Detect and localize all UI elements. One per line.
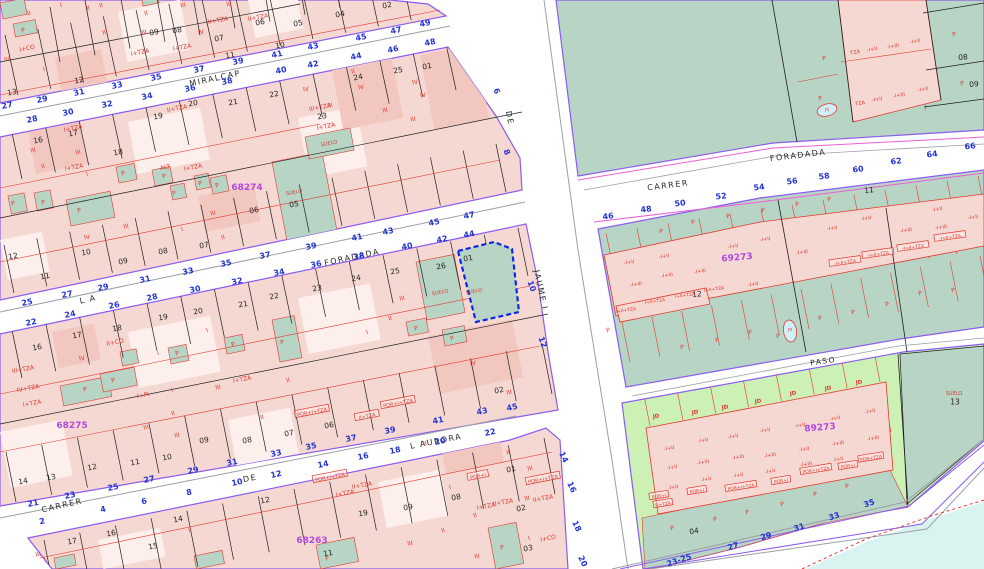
parcel-number: 25 (393, 65, 404, 76)
parcel-annotation: SUELO (946, 391, 963, 397)
parcel-number: 03 (523, 543, 534, 554)
parcel-number: 08 (158, 246, 169, 257)
parcel-number: 21 (228, 97, 239, 108)
street-number: 33 (111, 80, 124, 91)
street-number: 8 (185, 487, 193, 497)
street-name: CARRER (647, 178, 690, 192)
parcel-number: 08 (172, 25, 183, 36)
pink-strip-bundle (838, 0, 941, 122)
parcel-number: 17 (72, 330, 83, 341)
parcel-number: 02 (494, 385, 505, 396)
parcel-annotation: JD (854, 379, 863, 386)
parcel-number: 16 (33, 135, 44, 146)
parcel-number: 09 (403, 502, 414, 513)
street-number: 52 (715, 191, 727, 201)
street-number: 47 (463, 210, 476, 221)
parcel-number: 26 (436, 261, 447, 272)
street-number: 48 (640, 204, 653, 214)
parcel-number: 20 (188, 98, 199, 109)
street-number: 56 (786, 176, 799, 186)
street-number: 31 (139, 274, 152, 285)
suelo-13-parcel (900, 346, 984, 504)
parcel-number: 05 (293, 18, 304, 29)
street-number: 37 (259, 250, 272, 261)
parcel-number: 11 (864, 185, 875, 195)
street-number: 31 (73, 87, 86, 98)
street-number: 20 (576, 554, 589, 568)
parcel-number: 17 (67, 536, 78, 547)
parcel-number: 16 (32, 342, 43, 353)
street-number: 48 (424, 37, 437, 48)
parcel-annotation: PI (788, 328, 792, 334)
street-number: 50 (674, 198, 687, 208)
parcel-number: 07 (284, 428, 295, 439)
street-number: 43 (307, 41, 320, 52)
parcel-number: 22 (269, 89, 280, 100)
parcel-number: 05 (289, 199, 300, 210)
parcel-annotation: JD (651, 413, 660, 420)
parcel-number: 12 (8, 251, 19, 262)
street-number: 20 (434, 436, 447, 447)
street-number: 31 (226, 457, 239, 468)
parcel-number: 12 (74, 75, 85, 86)
parcel-number: 18 (113, 147, 124, 158)
street-number: 46 (387, 44, 400, 55)
street-number: 30 (62, 107, 75, 118)
parcel-shade (330, 48, 403, 130)
parcel-number: 12 (260, 495, 271, 506)
parcel-annotation: JD (753, 398, 762, 405)
street-number: 44 (350, 51, 363, 62)
parcel-number: 19 (158, 312, 169, 323)
street-number: 42 (307, 59, 320, 70)
street-name: CARRER (41, 496, 84, 514)
street-number: 41 (351, 232, 364, 243)
parcel-number: 08 (958, 52, 969, 62)
parcel-number: 08 (242, 435, 253, 446)
street-number: 18 (570, 519, 583, 533)
street-number: 25 (21, 297, 34, 308)
street-number: 16 (565, 480, 578, 494)
street-number: 27 (61, 289, 74, 300)
parcel-number: 06 (324, 420, 335, 431)
patio-parcel (116, 163, 137, 183)
street-number: 21 (27, 498, 40, 509)
street-number: 43 (382, 226, 395, 237)
street-number: 22 (484, 427, 497, 438)
street-number: 6 (491, 87, 502, 96)
street-name: DE (504, 110, 516, 126)
parcel-number: 10 (275, 40, 286, 51)
parcel-number: 09 (149, 27, 160, 38)
street-number: 41 (271, 49, 284, 60)
street-number: 60 (852, 164, 865, 174)
cadastral-map-canvas[interactable]: MIRALCAPL AFORADADACARRERDEL AURORADEJAU… (0, 0, 984, 569)
street-number: 18 (389, 445, 402, 456)
parcel-annotation: P (606, 327, 611, 334)
parcel-number: 07 (199, 240, 210, 251)
parcel-number: 19 (153, 111, 164, 122)
street-number: 45 (355, 32, 368, 43)
parcel-number: 10 (81, 247, 92, 258)
street-number: 27 (1, 100, 14, 111)
parcel-number: 09 (969, 79, 980, 89)
street-number: 16 (357, 451, 370, 462)
street-number: 14 (317, 459, 330, 470)
parcel-number: 16 (106, 528, 117, 539)
street-name: FORADADA (769, 147, 826, 163)
parcel-number: 19 (358, 508, 369, 519)
parcel-number: 22 (269, 291, 280, 302)
street-number: 54 (753, 182, 766, 192)
parcel-number: 08 (451, 492, 462, 503)
parcel-number: 11 (40, 271, 51, 282)
parcel-number: 10 (162, 452, 173, 463)
parcel-number: 20 (193, 306, 204, 317)
street-number: 64 (926, 149, 939, 159)
parcel-number: 01 (463, 253, 474, 264)
street-number: 32 (101, 99, 114, 110)
street-number: 12 (270, 469, 283, 480)
parcel-number: 24 (351, 273, 362, 284)
street-number: 34 (141, 91, 154, 102)
patio-parcel (210, 175, 229, 194)
street-number: 47 (390, 25, 403, 36)
parcel-number: 11 (130, 457, 141, 468)
parcel-number: 13 (7, 87, 18, 98)
parcel-number: 15 (148, 541, 159, 552)
parcel-number: 14 (173, 514, 184, 525)
street-number: 29 (97, 282, 110, 293)
parcel-number: 02 (382, 0, 393, 10)
parcel-number: 06 (249, 205, 260, 216)
patio-parcel (120, 349, 139, 366)
street-number: 45 (428, 217, 441, 228)
street-number: 6 (140, 496, 148, 506)
parcel-number: 07 (214, 33, 225, 44)
street-number: 2 (38, 516, 45, 526)
parcel-annotation: JD (823, 385, 832, 392)
parcel-annotation: JD (788, 390, 797, 397)
street-number: 46 (602, 211, 615, 221)
parcel-number: 13 (46, 472, 57, 483)
street-number: 39 (305, 241, 318, 252)
block-number: 68274 (231, 183, 262, 193)
parcel-annotation: JD (690, 409, 699, 416)
cadastral-map: MIRALCAPL AFORADADACARRERDEL AURORADEJAU… (0, 0, 984, 569)
street-name: DE (242, 472, 258, 484)
parcel-number: 18 (112, 323, 123, 334)
parcel-number: 11 (225, 50, 236, 61)
parcel-annotation: JD (720, 404, 729, 411)
street-number: 36 (184, 83, 197, 94)
street-number: 37 (193, 64, 206, 75)
street-number: 29 (187, 465, 200, 476)
parcel-number: 14 (18, 476, 29, 487)
street-number: 29 (36, 94, 49, 105)
parcel-number: 09 (199, 435, 210, 446)
parcel-number: 09 (118, 256, 129, 267)
street-number: 10 (231, 477, 244, 488)
street-number: 25 (107, 482, 120, 493)
street-number: 38 (221, 76, 234, 87)
street-number: 27 (143, 474, 156, 485)
street-number: 35 (220, 258, 233, 269)
street-number: 4 (99, 504, 107, 514)
parcel-number: 12 (87, 462, 98, 473)
street-number: 62 (890, 156, 902, 166)
street-number: 35 (150, 72, 163, 83)
street-number: 40 (275, 65, 288, 76)
parcel-annotation: PI (825, 108, 829, 114)
parcel-number: 23 (317, 111, 328, 122)
block-number: 68275 (56, 421, 87, 431)
parcel-number: 01 (422, 61, 433, 72)
parcel-number: 04 (335, 9, 346, 20)
parcel-number: 23 (312, 283, 323, 294)
block-number: 68263 (296, 536, 327, 546)
street-number: 58 (818, 171, 831, 181)
street-number: 33 (182, 266, 195, 277)
street-number: 66 (964, 141, 977, 151)
parcel-number: 01 (506, 464, 517, 475)
parcel-number: 04 (689, 526, 700, 536)
street-number: 49 (419, 18, 432, 29)
parcel-number: 21 (238, 299, 249, 310)
parcel-number: 02 (516, 503, 527, 514)
parcel-number: 13 (950, 398, 960, 407)
street-number: 28 (26, 114, 39, 125)
parcel-number: 25 (390, 266, 401, 277)
